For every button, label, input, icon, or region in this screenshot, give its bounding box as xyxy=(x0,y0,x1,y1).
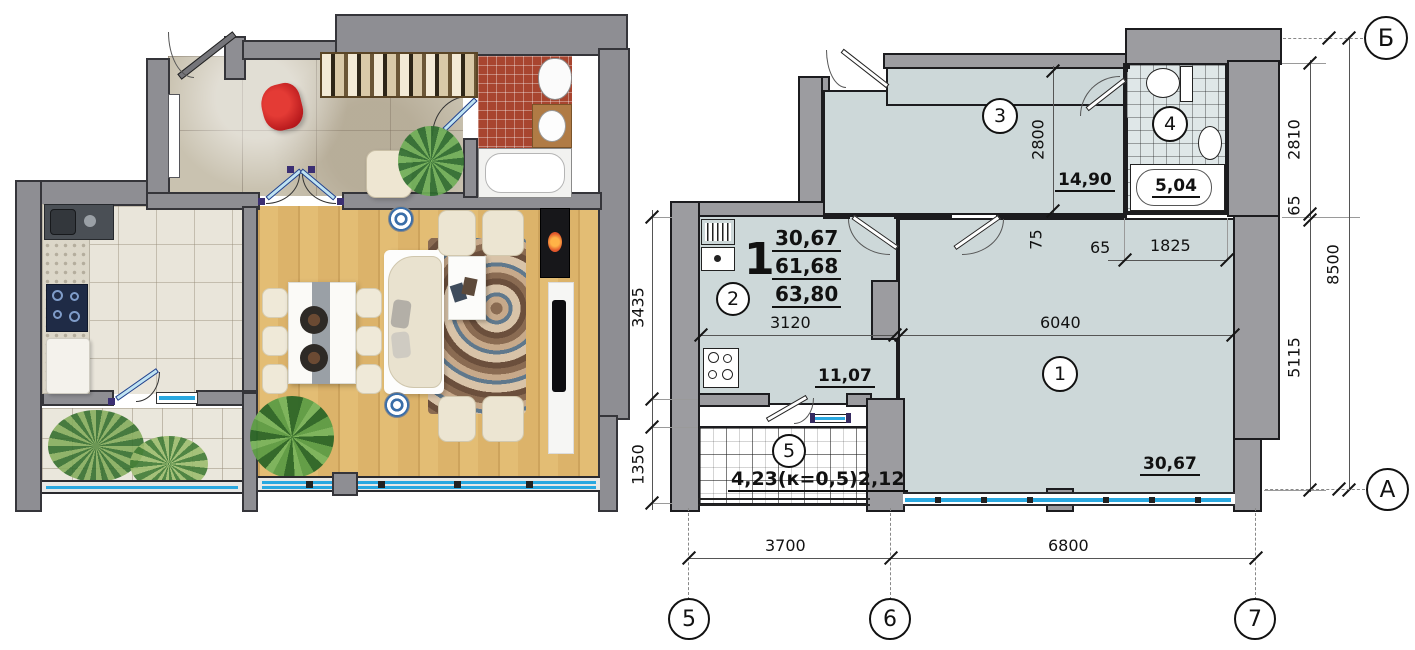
technical-floor-plan: 1 30,67 61,68 63,80 1 2 3 4 5 30,67 11,0… xyxy=(0,0,1415,650)
bath-sink xyxy=(1198,126,1222,160)
apartment-area-living: 30,67 xyxy=(772,226,841,252)
wall xyxy=(698,393,770,407)
window-mullion xyxy=(1027,497,1033,503)
partition xyxy=(1123,63,1128,72)
room-2-number: 2 xyxy=(716,282,750,316)
sink-dot xyxy=(714,255,721,262)
extension-line xyxy=(1264,490,1326,491)
partition xyxy=(823,213,850,219)
window-mullion xyxy=(1149,497,1155,503)
room-5-number: 5 xyxy=(772,434,806,468)
living-window-band xyxy=(903,492,1235,506)
room-2-area: 11,07 xyxy=(815,366,875,388)
balcony-rail xyxy=(698,498,870,500)
apartment-area-heated: 61,68 xyxy=(772,254,841,280)
room-4-area: 5,04 xyxy=(1152,176,1200,198)
room-1-number: 1 xyxy=(1042,356,1078,392)
dim-2810: 2810 xyxy=(1285,108,1304,172)
extension-line xyxy=(1282,63,1326,64)
axis-bubble-5: 5 xyxy=(668,598,710,640)
apartment-area-total: 63,80 xyxy=(772,282,841,308)
dim-line-2800 xyxy=(1053,66,1054,213)
extension-line xyxy=(1227,218,1228,260)
wall xyxy=(670,201,700,512)
partition xyxy=(896,220,900,280)
window-glass xyxy=(815,417,845,420)
dim-65a: 65 xyxy=(1090,238,1110,257)
axis-line xyxy=(1265,489,1365,490)
room-5-area: 4,23(к=0,5)2,12 xyxy=(728,468,908,492)
dim-line-3120 xyxy=(700,335,896,336)
window-mullion xyxy=(1195,497,1201,503)
burner xyxy=(708,352,719,363)
extension-line xyxy=(652,217,672,218)
wall xyxy=(798,76,823,217)
wall xyxy=(1233,438,1262,512)
dim-65b: 65 xyxy=(1285,174,1304,238)
room-1-area: 30,67 xyxy=(1140,454,1200,476)
window-mullion xyxy=(1103,497,1109,503)
axis-line xyxy=(1283,38,1363,39)
room-3-number: 3 xyxy=(982,98,1018,134)
extension-line xyxy=(652,427,698,428)
floor-plan-canvas: 1 30,67 61,68 63,80 1 2 3 4 5 30,67 11,0… xyxy=(0,0,1415,650)
extension-line xyxy=(652,399,698,400)
fridge-icon xyxy=(701,219,735,245)
window-glass xyxy=(905,498,1231,502)
toilet-bowl xyxy=(1146,68,1180,98)
axis-line xyxy=(688,508,689,600)
dim-3700: 3700 xyxy=(765,536,806,555)
room-3-area: 14,90 xyxy=(1055,170,1115,192)
dim-1350: 1350 xyxy=(629,433,648,497)
partition xyxy=(896,340,900,398)
dim-5115: 5115 xyxy=(1285,326,1304,390)
dim-line-bottom xyxy=(688,558,1256,559)
balcony-rail xyxy=(698,504,870,506)
extension-line xyxy=(1124,218,1125,260)
window-post xyxy=(846,413,851,423)
dim-line-6040 xyxy=(900,335,1233,336)
dim-line-right-inner xyxy=(1310,60,1311,492)
partition xyxy=(1125,211,1227,215)
dim-2800: 2800 xyxy=(1029,108,1048,172)
toilet-tank xyxy=(1180,66,1193,102)
partition xyxy=(1123,118,1128,215)
dim-6800: 6800 xyxy=(1048,536,1089,555)
burner xyxy=(708,370,717,379)
window-post xyxy=(810,413,815,423)
wall xyxy=(866,398,905,512)
dim-75: 75 xyxy=(1027,208,1046,272)
axis-bubble-6: 6 xyxy=(869,598,911,640)
dim-line-left xyxy=(652,210,653,510)
partition xyxy=(894,213,952,219)
apartment-number: 1 xyxy=(744,234,775,285)
dim-8500: 8500 xyxy=(1324,233,1343,297)
burner xyxy=(723,354,732,363)
dim-line-right-outer xyxy=(1349,38,1350,490)
axis-line xyxy=(890,508,891,600)
dim-3435: 3435 xyxy=(629,276,648,340)
partition xyxy=(996,213,1127,219)
dim-3120: 3120 xyxy=(770,313,811,332)
burner xyxy=(722,369,733,380)
axis-line xyxy=(1255,508,1256,600)
wall xyxy=(1227,60,1280,217)
wall xyxy=(883,53,1130,69)
axis-bubble-a: А xyxy=(1366,468,1409,511)
extension-line xyxy=(652,503,672,504)
window-mullion xyxy=(935,497,941,503)
axis-bubble-7: 7 xyxy=(1234,598,1276,640)
dim-1825: 1825 xyxy=(1150,236,1191,255)
dim-6040: 6040 xyxy=(1040,313,1081,332)
room-4-number: 4 xyxy=(1152,106,1188,142)
axis-bubble-b: Б xyxy=(1364,16,1408,60)
window-mullion xyxy=(981,497,987,503)
wall xyxy=(1233,215,1280,440)
